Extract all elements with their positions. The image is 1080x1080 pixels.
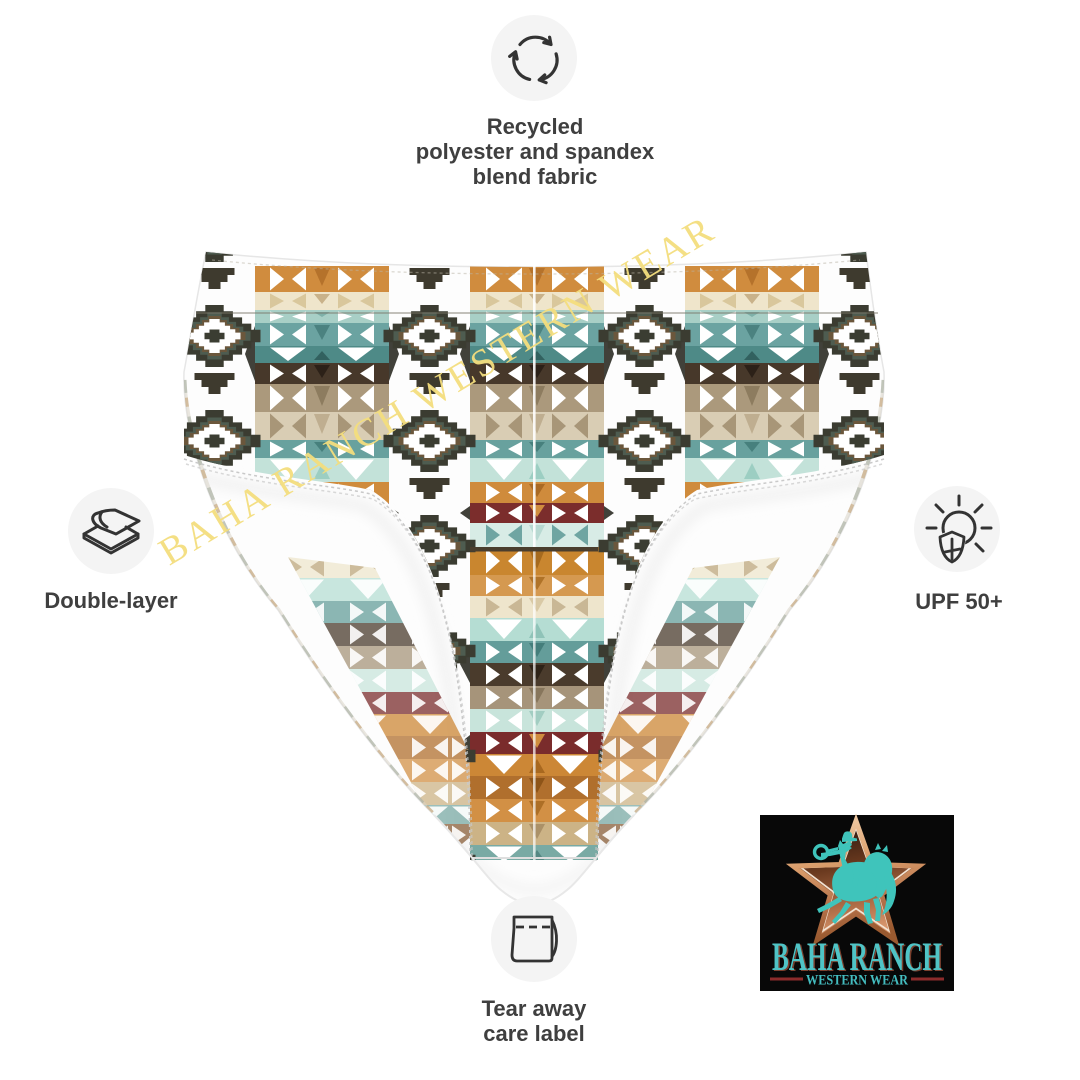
svg-text:UPF 50+: UPF 50+	[915, 589, 1002, 614]
svg-text:polyester and spandex: polyester and spandex	[416, 139, 655, 164]
svg-text:Recycled: Recycled	[487, 114, 584, 139]
svg-text:WESTERN WEAR: WESTERN WEAR	[806, 973, 908, 989]
svg-text:Tear away: Tear away	[482, 996, 588, 1021]
svg-text:blend fabric: blend fabric	[473, 164, 598, 189]
svg-text:Double-layer: Double-layer	[44, 588, 178, 613]
svg-text:care label: care label	[483, 1021, 585, 1046]
